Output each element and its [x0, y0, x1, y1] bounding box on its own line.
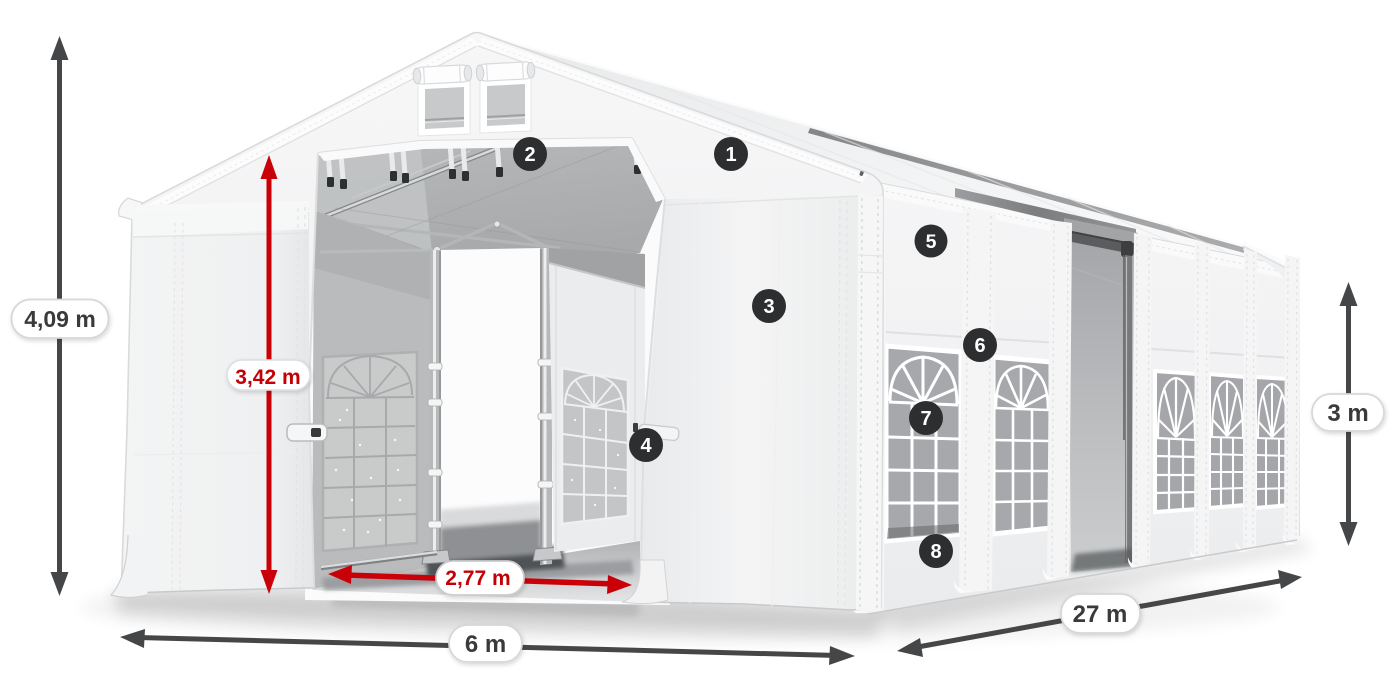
svg-text:4: 4 [640, 435, 652, 457]
svg-text:1: 1 [725, 144, 736, 166]
svg-text:3 m: 3 m [1327, 400, 1368, 427]
svg-text:8: 8 [930, 541, 941, 563]
svg-text:6: 6 [974, 335, 985, 357]
svg-text:2,77 m: 2,77 m [445, 567, 510, 590]
svg-text:3,42 m: 3,42 m [235, 366, 300, 389]
svg-text:4,09 m: 4,09 m [24, 306, 96, 332]
svg-text:2: 2 [524, 144, 535, 166]
svg-text:5: 5 [926, 231, 937, 253]
svg-text:3: 3 [763, 296, 774, 318]
svg-text:27 m: 27 m [1073, 601, 1128, 628]
svg-text:7: 7 [920, 408, 931, 430]
svg-text:6 m: 6 m [465, 631, 506, 658]
